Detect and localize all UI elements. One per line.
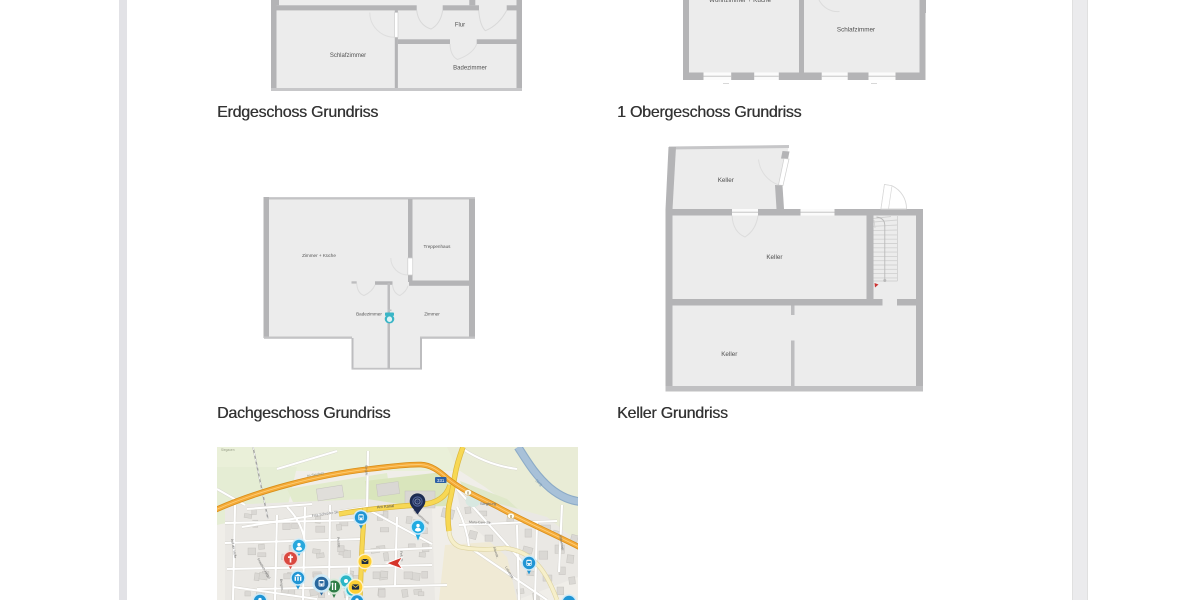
svg-text:Siegauen: Siegauen [221,448,235,452]
svg-text:Badezimmer: Badezimmer [356,312,382,317]
svg-text:Badezimmer: Badezimmer [453,66,487,72]
svg-text:Siegburg: Siegburg [480,501,496,506]
svg-text:Siegstr.: Siegstr. [364,465,369,477]
svg-text:Keller: Keller [718,177,734,184]
svg-text:Zimmer + Küche: Zimmer + Küche [302,253,336,258]
svg-text:Schlafzimmer: Schlafzimmer [837,27,875,34]
svg-text:331: 331 [437,478,445,483]
svg-text:Treppenhaus: Treppenhaus [424,244,452,249]
svg-text:Keller: Keller [766,254,782,261]
svg-text:Flur: Flur [455,23,465,29]
svg-text:Zimmer: Zimmer [424,312,440,317]
svg-text:Wohnzimmer + Küche: Wohnzimmer + Küche [709,0,772,4]
svg-text:Mara-Care-Str.: Mara-Care-Str. [469,520,492,525]
svg-text:Schlafzimmer: Schlafzimmer [330,53,366,59]
svg-text:Keller: Keller [721,351,737,358]
